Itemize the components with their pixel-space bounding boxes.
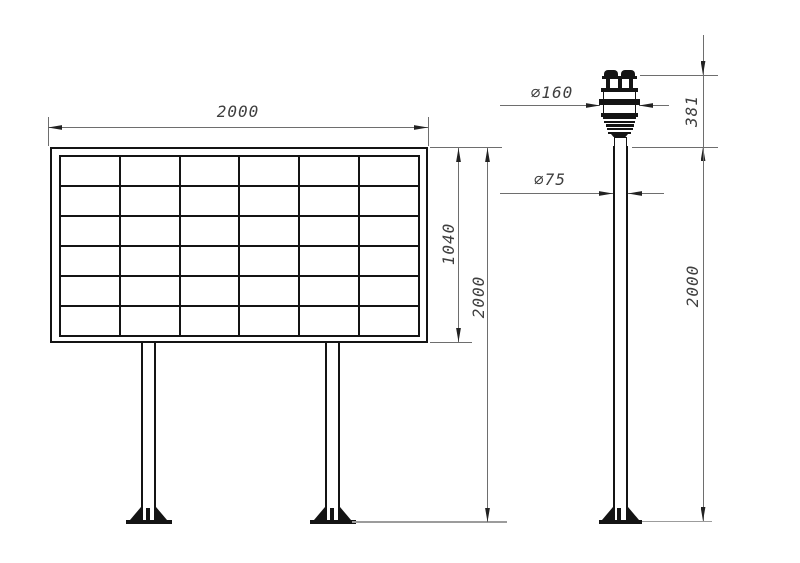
support-leg [141, 343, 156, 521]
gusset [602, 507, 613, 520]
panel-grid-cell [121, 187, 179, 215]
panel-grid-cell [360, 247, 418, 275]
dim-arrow-up-icon [456, 148, 461, 162]
technical-drawing: 2000 1040 2000 [0, 0, 800, 563]
panel-grid-cell [121, 217, 179, 245]
panel-grid-cell [121, 277, 179, 305]
pole-height-dim-label: 2000 [684, 256, 702, 316]
dim-arrow-left-icon [628, 191, 642, 196]
extension-line [428, 117, 429, 146]
dimension-line [487, 148, 488, 522]
panel-grid [59, 155, 420, 337]
panel-grid-cell [181, 217, 239, 245]
sensor-head-diameter-label: ∅160 [524, 84, 580, 102]
ground-line [642, 521, 712, 523]
dimension-line [703, 147, 704, 521]
pole-diameter-label: ∅75 [526, 171, 574, 189]
dimension-line [500, 105, 600, 106]
panel-grid-cell [240, 217, 298, 245]
gusset [156, 507, 167, 520]
dim-arrow-up-icon [485, 148, 490, 162]
gusset [130, 507, 141, 520]
panel-grid-cell [240, 187, 298, 215]
anchor-bolt [617, 508, 621, 520]
extension-line [640, 75, 718, 76]
rib [607, 128, 633, 130]
panel-height-dim-label: 1040 [440, 214, 458, 274]
panel-grid-cell [240, 247, 298, 275]
board-width-dim-label: 2000 [208, 103, 268, 121]
panel-grid-cell [181, 307, 239, 335]
panel-grid-cell [300, 187, 358, 215]
panel-grid-cell [61, 217, 119, 245]
panel-grid-cell [61, 307, 119, 335]
panel-grid-cell [181, 157, 239, 185]
radiation-shield-ribs [603, 117, 636, 134]
panel-grid-cell [360, 217, 418, 245]
dim-arrow-down-icon [485, 508, 490, 522]
panel-grid-cell [61, 187, 119, 215]
panel-grid-cell [240, 157, 298, 185]
panel-grid-cell [61, 247, 119, 275]
dim-arrow-left-icon [48, 125, 62, 130]
mounting-pole [613, 146, 628, 522]
anchor-bolt [146, 508, 150, 520]
panel-grid-cell [61, 157, 119, 185]
ground-line [352, 521, 507, 523]
panel-grid-cell [240, 307, 298, 335]
panel-grid-cell [61, 277, 119, 305]
rib [608, 132, 631, 134]
dim-arrow-down-icon [701, 507, 706, 521]
gusset [314, 507, 325, 520]
gusset [628, 507, 639, 520]
panel-grid-cell [360, 187, 418, 215]
extension-line [48, 117, 49, 146]
rib [606, 124, 634, 126]
panel-grid-cell [300, 277, 358, 305]
board-total-height-dim-label: 2000 [470, 267, 488, 327]
base-plate [310, 520, 356, 524]
panel-grid-cell [300, 157, 358, 185]
panel-grid-cell [121, 157, 179, 185]
sensor-neck [614, 137, 627, 147]
dim-arrow-right-icon [586, 103, 600, 108]
panel-grid-cell [121, 247, 179, 275]
dim-arrow-left-icon [639, 103, 653, 108]
sensor-head-height-label: 381 [683, 81, 701, 141]
rib [604, 121, 635, 123]
panel-grid-cell [121, 307, 179, 335]
anchor-bolt [330, 508, 334, 520]
base-plate [126, 520, 172, 524]
dim-arrow-down-icon [456, 328, 461, 342]
gusset [340, 507, 351, 520]
dimension-line [48, 127, 428, 128]
dim-arrow-down-icon [701, 61, 706, 75]
dim-arrow-right-icon [599, 191, 613, 196]
panel-grid-cell [300, 307, 358, 335]
panel-grid-cell [181, 187, 239, 215]
dimension-line [500, 193, 613, 194]
panel-grid-cell [360, 277, 418, 305]
panel-grid-cell [181, 247, 239, 275]
extension-line [430, 342, 472, 343]
extension-line [430, 147, 502, 148]
support-leg [325, 343, 340, 521]
extension-line [632, 147, 718, 148]
panel-grid-cell [360, 307, 418, 335]
panel-grid-cell [181, 277, 239, 305]
base-plate [599, 520, 642, 524]
panel-grid-cell [240, 277, 298, 305]
dimension-line [703, 75, 704, 147]
panel-grid-cell [360, 157, 418, 185]
panel-grid-cell [300, 217, 358, 245]
rib [603, 117, 636, 119]
dim-arrow-right-icon [414, 125, 428, 130]
panel-grid-cell [300, 247, 358, 275]
dimension-line [458, 148, 459, 342]
